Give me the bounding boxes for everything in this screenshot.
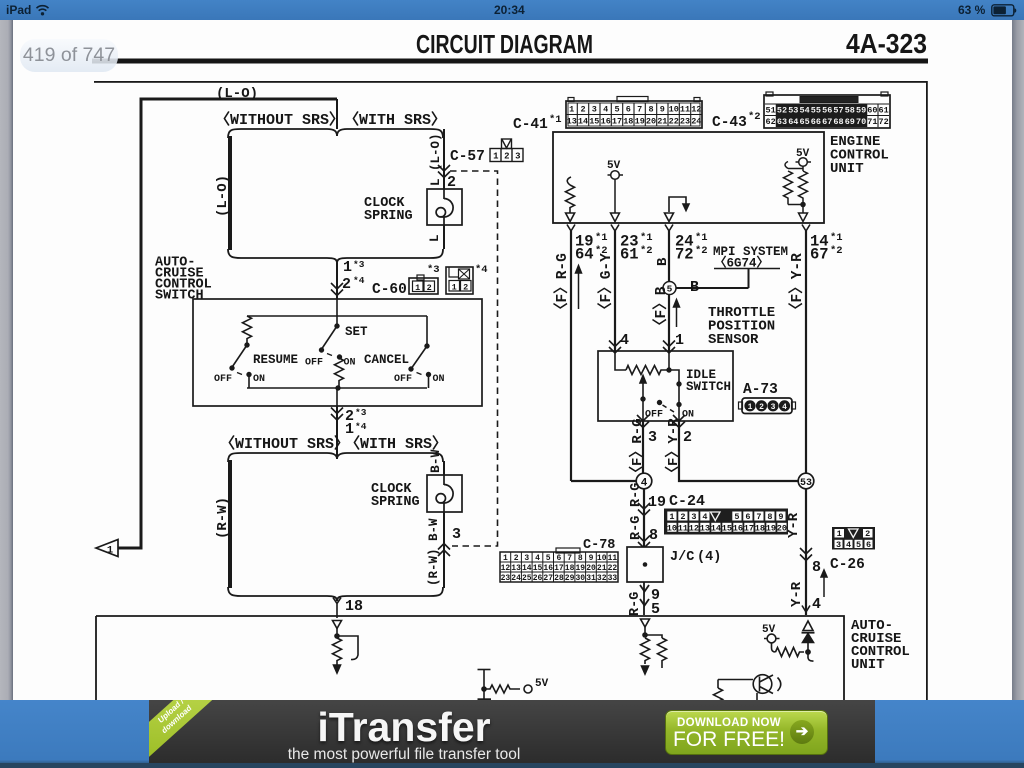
- svg-text:19: 19: [635, 117, 645, 127]
- svg-text:C-24: C-24: [669, 493, 705, 510]
- svg-text:*4: *4: [353, 275, 365, 286]
- svg-text:*1: *1: [830, 232, 843, 244]
- svg-text:*1: *1: [695, 232, 708, 244]
- svg-text:1: 1: [748, 403, 753, 412]
- svg-text:3: 3: [771, 403, 776, 412]
- svg-text:5: 5: [734, 512, 739, 522]
- svg-text:4: 4: [782, 403, 787, 412]
- svg-text:2: 2: [683, 429, 692, 446]
- svg-text:11: 11: [678, 523, 688, 533]
- svg-text:OFF: OFF: [394, 374, 412, 385]
- svg-text:CANCEL: CANCEL: [364, 353, 409, 367]
- svg-text:71: 71: [867, 117, 877, 127]
- svg-text:〈F〉Y-R: 〈F〉Y-R: [788, 253, 806, 317]
- svg-text:1: 1: [415, 283, 420, 293]
- svg-text:61: 61: [878, 106, 888, 116]
- svg-text:24: 24: [511, 574, 521, 583]
- svg-text:*1: *1: [549, 114, 562, 126]
- svg-text:L (L-O): L (L-O): [429, 133, 443, 186]
- svg-text:L: L: [428, 234, 442, 242]
- svg-text:16: 16: [543, 564, 553, 573]
- svg-text:19: 19: [648, 494, 666, 511]
- svg-text:19: 19: [766, 523, 776, 533]
- svg-text:17: 17: [744, 523, 754, 533]
- svg-text:2: 2: [463, 282, 468, 292]
- svg-text:5: 5: [614, 105, 619, 115]
- svg-text:2: 2: [342, 276, 351, 293]
- svg-text:5V: 5V: [762, 624, 776, 636]
- svg-text:26: 26: [533, 574, 543, 583]
- svg-text:19: 19: [575, 564, 585, 573]
- svg-text:61: 61: [620, 246, 639, 264]
- svg-text:ON: ON: [433, 374, 445, 385]
- svg-text:72: 72: [878, 117, 888, 127]
- svg-text:63: 63: [777, 117, 787, 127]
- svg-text:7: 7: [567, 554, 572, 563]
- svg-text:67: 67: [822, 117, 832, 127]
- svg-text:ON: ON: [682, 410, 694, 421]
- svg-text:2: 2: [759, 403, 764, 412]
- svg-text:23: 23: [501, 574, 511, 583]
- svg-text:B: B: [690, 279, 699, 296]
- svg-text:9: 9: [589, 554, 594, 563]
- svg-text:RESUME: RESUME: [253, 353, 298, 367]
- svg-text:1: 1: [669, 512, 674, 522]
- svg-text:54: 54: [799, 106, 809, 116]
- svg-text:4: 4: [702, 512, 707, 522]
- svg-text:5V: 5V: [607, 160, 621, 172]
- svg-text:*2: *2: [748, 111, 761, 123]
- svg-text:6: 6: [556, 554, 561, 563]
- svg-text:C-41: C-41: [513, 117, 548, 133]
- svg-text:8: 8: [812, 559, 821, 576]
- svg-text:3: 3: [648, 429, 657, 446]
- svg-text:15: 15: [722, 523, 732, 533]
- svg-text:〈F〉B: 〈F〉B: [652, 286, 670, 333]
- svg-text:33: 33: [608, 574, 618, 583]
- svg-text:OFF: OFF: [214, 374, 232, 385]
- svg-text:J/C (4): J/C (4): [670, 550, 721, 565]
- svg-text:62: 62: [765, 117, 775, 127]
- svg-text:25: 25: [522, 574, 532, 583]
- svg-text:*2: *2: [830, 245, 843, 257]
- svg-text:16: 16: [601, 117, 611, 127]
- svg-text:58: 58: [845, 106, 855, 116]
- svg-text:14: 14: [522, 564, 532, 573]
- svg-text:72: 72: [675, 246, 694, 264]
- svg-text:C-60: C-60: [372, 282, 407, 298]
- svg-text:3: 3: [592, 105, 597, 115]
- svg-text:OFF: OFF: [305, 358, 323, 369]
- svg-text:*3: *3: [427, 264, 440, 276]
- svg-text:*4: *4: [475, 264, 488, 276]
- svg-text:53: 53: [788, 106, 798, 116]
- svg-text:C-43: C-43: [712, 115, 747, 131]
- svg-text:〈F〉G-Y: 〈F〉G-Y: [597, 253, 615, 317]
- svg-text:3: 3: [452, 526, 461, 543]
- svg-text:〈WITH SRS〉: 〈WITH SRS〉: [344, 110, 446, 129]
- svg-text:2: 2: [865, 529, 870, 539]
- svg-text:68: 68: [833, 117, 843, 127]
- svg-text:4: 4: [535, 554, 540, 563]
- svg-text:15: 15: [533, 564, 543, 573]
- svg-text:3: 3: [515, 152, 520, 162]
- svg-text:2: 2: [427, 283, 432, 293]
- svg-text:64: 64: [575, 246, 594, 264]
- svg-text:31: 31: [586, 574, 596, 583]
- svg-text:6: 6: [745, 512, 750, 522]
- svg-text:8: 8: [578, 554, 583, 563]
- svg-text:1: 1: [493, 152, 499, 162]
- svg-text:10: 10: [597, 554, 607, 563]
- svg-text:(L-O): (L-O): [216, 86, 258, 102]
- svg-text:15: 15: [589, 117, 599, 127]
- svg-text:21: 21: [657, 117, 667, 127]
- svg-text:4: 4: [812, 596, 821, 613]
- svg-text:13: 13: [511, 564, 521, 573]
- svg-text:*2: *2: [695, 245, 708, 257]
- svg-text:1: 1: [569, 105, 574, 115]
- svg-text:R-G: R-G: [629, 483, 644, 507]
- svg-text:70: 70: [856, 117, 866, 127]
- svg-text:30: 30: [575, 574, 585, 583]
- svg-text:29: 29: [565, 574, 575, 583]
- svg-text:7: 7: [756, 512, 761, 522]
- svg-text:57: 57: [833, 106, 843, 116]
- svg-text:4: 4: [620, 332, 629, 349]
- svg-text:11: 11: [680, 105, 690, 115]
- svg-text:UNIT: UNIT: [851, 657, 885, 673]
- svg-text:1: 1: [675, 332, 684, 349]
- svg-text:51: 51: [765, 106, 775, 116]
- svg-text:66: 66: [811, 117, 821, 127]
- svg-text:7: 7: [637, 105, 642, 115]
- svg-text:*3: *3: [355, 407, 367, 418]
- svg-text:*2: *2: [640, 245, 653, 257]
- svg-text:17: 17: [554, 564, 564, 573]
- svg-text:SENSOR: SENSOR: [708, 332, 759, 348]
- svg-text:56: 56: [822, 106, 832, 116]
- svg-text:18: 18: [565, 564, 575, 573]
- svg-text:53: 53: [800, 478, 812, 489]
- svg-text:1: 1: [503, 554, 508, 563]
- svg-text:*1: *1: [595, 232, 608, 244]
- svg-text:10: 10: [669, 105, 679, 115]
- svg-text:27: 27: [543, 574, 553, 583]
- svg-text:B-W: B-W: [428, 449, 443, 473]
- svg-text:16: 16: [733, 523, 743, 533]
- svg-text:9: 9: [660, 105, 665, 115]
- svg-text:OFF: OFF: [645, 410, 663, 421]
- svg-text:2: 2: [504, 152, 509, 162]
- svg-text:12: 12: [689, 523, 699, 533]
- svg-text:21: 21: [597, 564, 607, 573]
- svg-text:*3: *3: [353, 259, 365, 270]
- svg-text:60: 60: [867, 106, 877, 116]
- svg-text:12: 12: [691, 105, 701, 115]
- svg-text:18: 18: [623, 117, 633, 127]
- svg-text:9: 9: [778, 512, 783, 522]
- svg-text:6: 6: [626, 105, 631, 115]
- svg-text:52: 52: [777, 106, 787, 116]
- svg-text:1: 1: [107, 545, 113, 557]
- svg-text:2: 2: [580, 105, 585, 115]
- svg-text:28: 28: [554, 574, 564, 583]
- svg-text:1: 1: [343, 259, 352, 276]
- svg-text:6: 6: [866, 540, 871, 550]
- svg-text:5: 5: [546, 554, 551, 563]
- svg-text:23: 23: [680, 117, 690, 127]
- svg-text:SWITCH: SWITCH: [686, 380, 731, 394]
- svg-text:〈F〉R-G: 〈F〉R-G: [553, 253, 571, 317]
- svg-text:22: 22: [669, 117, 679, 127]
- svg-text:22: 22: [608, 564, 618, 573]
- svg-text:UNIT: UNIT: [830, 161, 864, 177]
- svg-text:8: 8: [648, 105, 653, 115]
- svg-text:13: 13: [567, 117, 577, 127]
- svg-text:C-78: C-78: [583, 538, 615, 553]
- svg-text:5V: 5V: [535, 678, 549, 690]
- svg-text:17: 17: [612, 117, 622, 127]
- svg-text:69: 69: [845, 117, 855, 127]
- svg-text:5V: 5V: [796, 148, 810, 160]
- svg-text:1: 1: [837, 529, 842, 539]
- svg-text:*1: *1: [640, 232, 653, 244]
- svg-text:18: 18: [755, 523, 765, 533]
- svg-text:(R-W) B-W: (R-W) B-W: [427, 518, 441, 586]
- svg-text:B: B: [655, 257, 671, 266]
- svg-text:3: 3: [524, 554, 529, 563]
- svg-text:4: 4: [603, 105, 608, 115]
- svg-text:12: 12: [501, 564, 511, 573]
- svg-text:24: 24: [691, 117, 701, 127]
- svg-text:SWITCH: SWITCH: [155, 289, 204, 304]
- svg-text:C-26: C-26: [830, 557, 865, 573]
- svg-text:ON: ON: [253, 374, 265, 385]
- svg-text:A-73: A-73: [743, 382, 778, 398]
- svg-text:14: 14: [578, 117, 588, 127]
- svg-text:R-G: R-G: [629, 516, 644, 540]
- svg-text:55: 55: [811, 106, 821, 116]
- svg-text:14: 14: [711, 523, 721, 533]
- svg-text:1: 1: [452, 282, 457, 292]
- svg-text:*4: *4: [355, 421, 367, 432]
- svg-text:18: 18: [345, 598, 363, 615]
- svg-text:10: 10: [667, 523, 677, 533]
- svg-text:4: 4: [846, 540, 851, 550]
- svg-text:67: 67: [810, 246, 829, 264]
- svg-text:3: 3: [836, 540, 841, 550]
- svg-text:(L-O): (L-O): [215, 175, 231, 217]
- svg-text:R-G: R-G: [628, 592, 643, 616]
- svg-text:64: 64: [788, 117, 798, 127]
- svg-text:〈WITHOUT SRS〉: 〈WITHOUT SRS〉: [215, 110, 344, 129]
- svg-text:SPRING: SPRING: [371, 495, 420, 510]
- svg-text:11: 11: [608, 554, 618, 563]
- svg-text:4A-323: 4A-323: [846, 28, 927, 59]
- svg-text:20: 20: [646, 117, 656, 127]
- svg-text:Y-R: Y-R: [786, 512, 802, 538]
- svg-text:8: 8: [767, 512, 772, 522]
- svg-text:2: 2: [680, 512, 685, 522]
- svg-text:32: 32: [597, 574, 607, 583]
- svg-text:〈WITHOUT SRS〉: 〈WITHOUT SRS〉: [220, 434, 349, 453]
- svg-text:SET: SET: [345, 325, 368, 339]
- svg-text:13: 13: [700, 523, 710, 533]
- svg-text:CIRCUIT DIAGRAM: CIRCUIT DIAGRAM: [416, 29, 593, 59]
- svg-text:3: 3: [691, 512, 696, 522]
- svg-text:8: 8: [649, 527, 658, 544]
- svg-text:(R-W): (R-W): [215, 497, 231, 539]
- svg-text:2: 2: [514, 554, 519, 563]
- svg-text:59: 59: [856, 106, 866, 116]
- svg-text:SPRING: SPRING: [364, 209, 413, 224]
- svg-text:C-57: C-57: [450, 149, 485, 165]
- svg-text:65: 65: [799, 117, 809, 127]
- svg-text:5: 5: [856, 540, 861, 550]
- svg-text:ON: ON: [344, 358, 356, 369]
- svg-text:Y-R: Y-R: [789, 581, 805, 607]
- svg-text:20: 20: [586, 564, 596, 573]
